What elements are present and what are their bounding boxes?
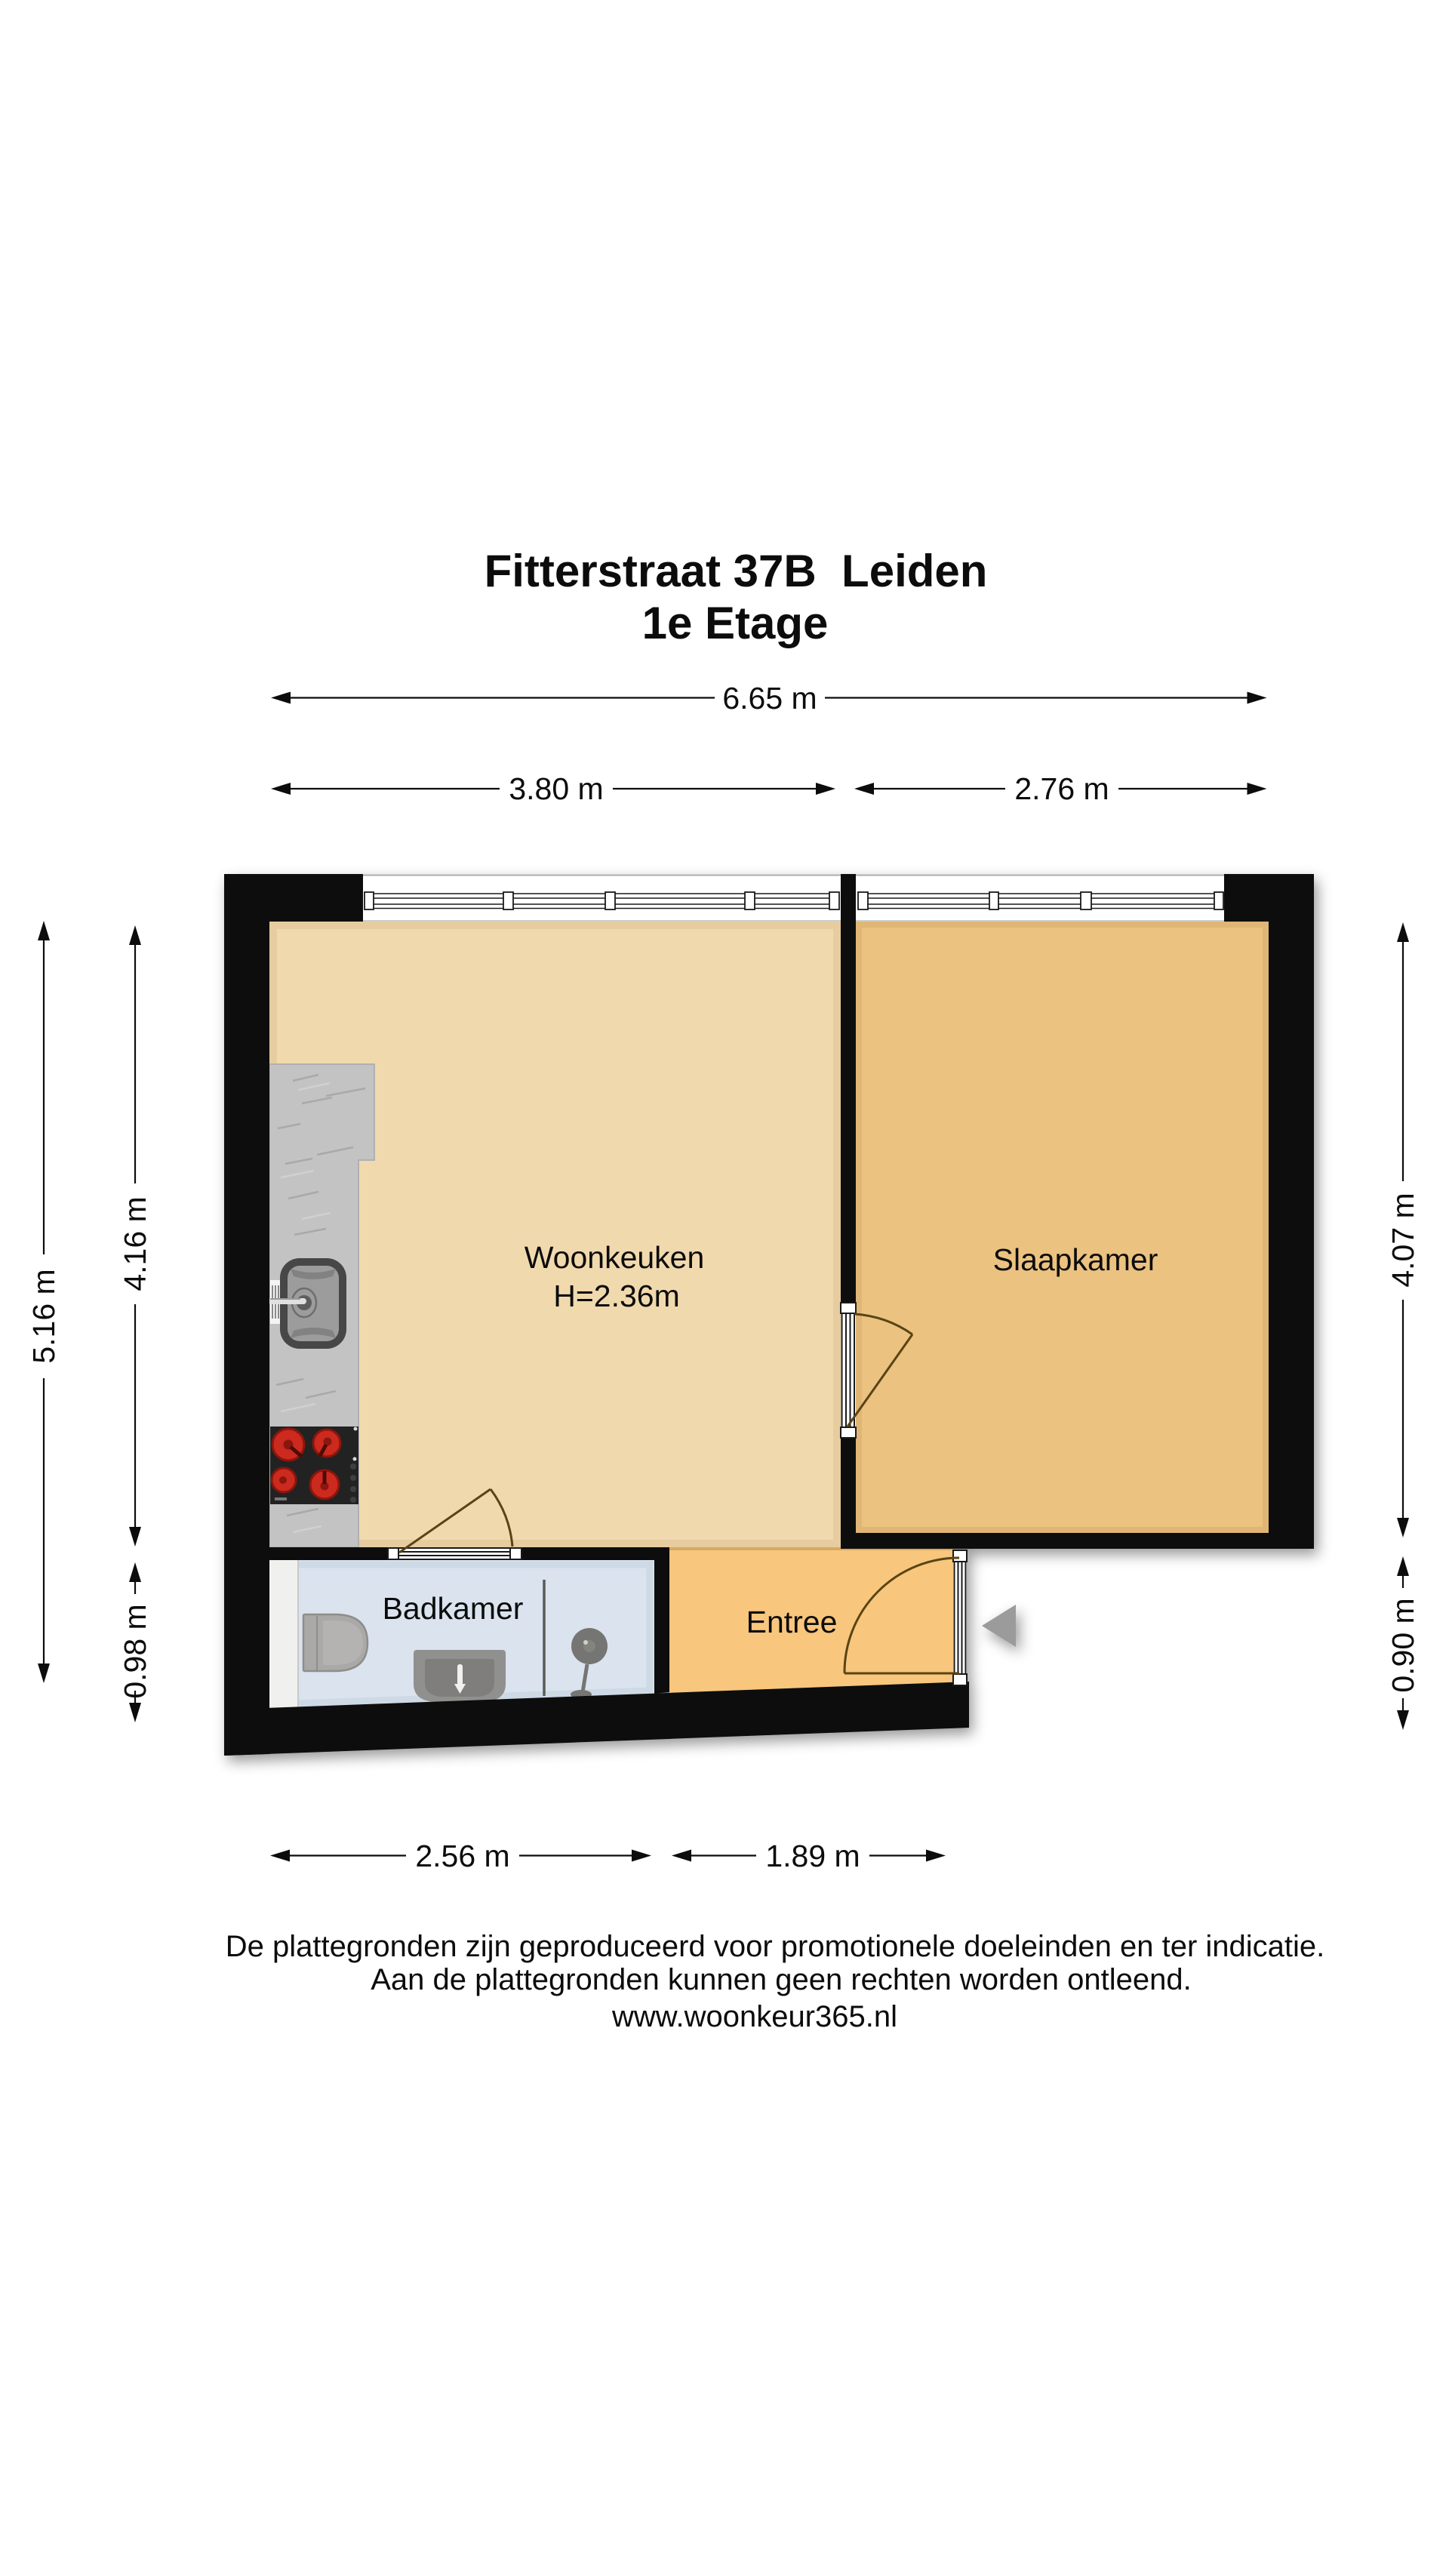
svg-text:0.98 m: 0.98 m [118,1604,152,1698]
svg-text:Entree: Entree [746,1605,838,1639]
svg-text:1.89 m: 1.89 m [765,1839,860,1873]
svg-text:Slaapkamer: Slaapkamer [993,1242,1158,1277]
svg-text:Badkamer: Badkamer [383,1591,524,1626]
svg-text:0.90 m: 0.90 m [1386,1598,1420,1692]
svg-text:2.76 m: 2.76 m [1014,771,1109,806]
svg-text:5.16 m: 5.16 m [26,1269,61,1363]
svg-text:1e Etage: 1e Etage [642,598,829,648]
svg-text:6.65 m: 6.65 m [722,681,817,716]
svg-text:Aan de plattegronden kunnen ge: Aan de plattegronden kunnen geen rechten… [371,1963,1192,1996]
svg-text:Fitterstraat 37B Leiden: Fitterstraat 37B Leiden [485,546,988,596]
svg-text:H=2.36m: H=2.36m [553,1279,680,1313]
svg-text:3.80 m: 3.80 m [509,771,603,806]
svg-text:De plattegronden zijn geproduc: De plattegronden zijn geproduceerd voor … [226,1930,1325,1963]
svg-text:2.56 m: 2.56 m [415,1839,509,1873]
svg-text:4.16 m: 4.16 m [118,1196,152,1291]
svg-text:www.woonkeur365.nl: www.woonkeur365.nl [611,2000,897,2033]
svg-text:Woonkeuken: Woonkeuken [525,1240,705,1275]
svg-text:4.07 m: 4.07 m [1386,1193,1420,1287]
